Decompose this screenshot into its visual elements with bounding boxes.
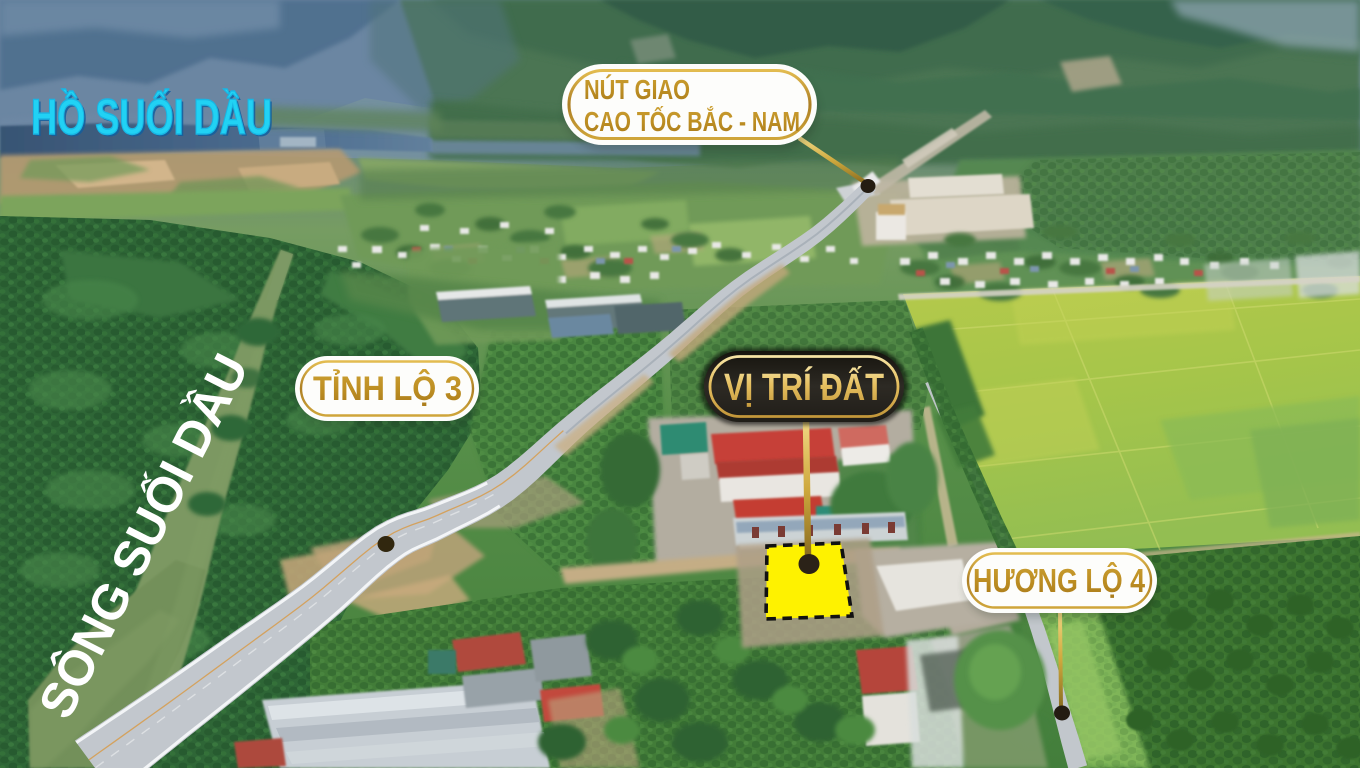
svg-text:NÚT GIAO: NÚT GIAO [584,74,690,105]
svg-text:CAO TỐC BẮC - NAM: CAO TỐC BẮC - NAM [584,105,800,137]
svg-text:TỈNH LỘ 3: TỈNH LỘ 3 [313,369,462,408]
svg-text:VỊ TRÍ ĐẤT: VỊ TRÍ ĐẤT [724,365,884,409]
svg-text:HƯƠNG LỘ 4: HƯƠNG LỘ 4 [973,561,1146,599]
svg-text:HỒ SUỐI DẦU: HỒ SUỐI DẦU [31,88,272,145]
